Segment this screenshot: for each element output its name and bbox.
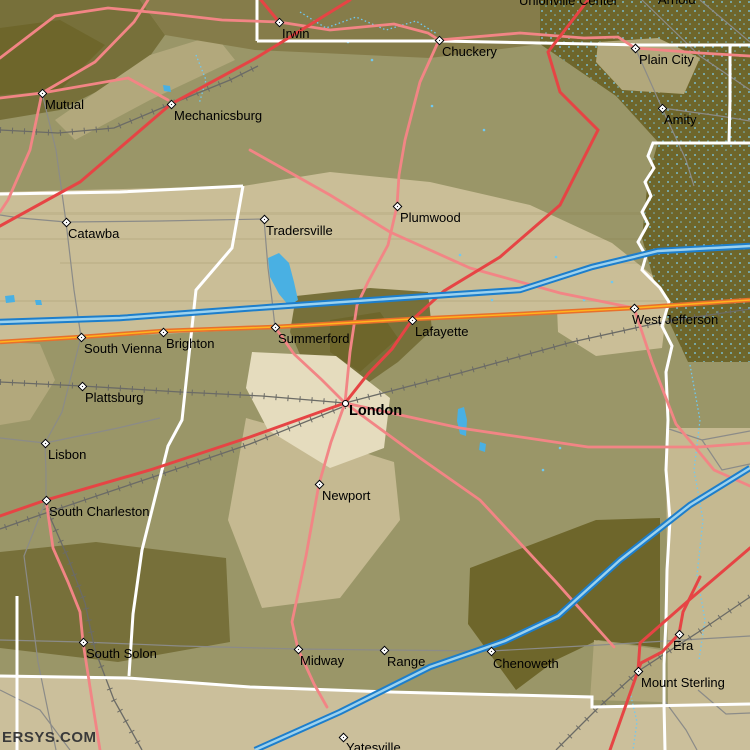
town-dot <box>274 326 276 328</box>
town-label-irwin: Irwin <box>282 27 309 41</box>
town-label-amity: Amity <box>664 113 697 127</box>
town-label-mount-sterling: Mount Sterling <box>641 676 725 690</box>
town-dot <box>45 499 47 501</box>
map-canvas[interactable]: IrwinChuckeryUnionville CenterArnoldPlai… <box>0 0 750 750</box>
town-label-west-jefferson: West Jefferson <box>632 313 718 327</box>
town-dot <box>80 336 82 338</box>
terrain-layer <box>0 0 750 750</box>
town-dot <box>44 442 46 444</box>
town-dot <box>678 633 680 635</box>
town-label-south-vienna: South Vienna <box>84 342 162 356</box>
town-dot <box>41 92 43 94</box>
town-dot <box>162 331 164 333</box>
town-label-catawba: Catawba <box>68 227 119 241</box>
town-label-arnold: Arnold <box>658 0 696 7</box>
town-label-plattsburg: Plattsburg <box>85 391 144 405</box>
town-dot <box>170 103 172 105</box>
town-label-plain-city: Plain City <box>639 53 694 67</box>
town-dot <box>65 221 67 223</box>
town-dot <box>383 649 385 651</box>
town-label-era: Era <box>673 639 693 653</box>
town-label-tradersville: Tradersville <box>266 224 333 238</box>
town-dot <box>633 307 635 309</box>
town-label-south-solon: South Solon <box>86 647 157 661</box>
town-label-mechanicsburg: Mechanicsburg <box>174 109 262 123</box>
town-dot <box>297 648 299 650</box>
town-label-plumwood: Plumwood <box>400 211 461 225</box>
town-dot <box>438 39 440 41</box>
relief-streak <box>60 262 660 264</box>
town-dot <box>637 670 639 672</box>
pond-mechanicsburg <box>163 85 171 92</box>
town-dot <box>342 736 344 738</box>
town-dot <box>396 205 398 207</box>
town-label-south-charleston: South Charleston <box>49 505 149 519</box>
town-label-chenoweth: Chenoweth <box>493 657 559 671</box>
town-label-range: Range <box>387 655 425 669</box>
town-label-lafayette: Lafayette <box>415 325 469 339</box>
boundary-northeast-vertical <box>729 45 730 143</box>
town-label-mutual: Mutual <box>45 98 84 112</box>
town-dot <box>634 47 636 49</box>
watermark: ERSYS.COM <box>2 729 97 746</box>
town-label-midway: Midway <box>300 654 344 668</box>
town-label-london: London <box>349 404 402 418</box>
town-dot <box>263 218 265 220</box>
relief-streak <box>0 212 750 215</box>
town-marker-london <box>342 400 349 407</box>
town-label-brighton: Brighton <box>166 337 214 351</box>
map-image <box>0 0 750 750</box>
town-label-lisbon: Lisbon <box>48 448 86 462</box>
town-label-unionville-center: Unionville Center <box>519 0 618 8</box>
pond-small-3 <box>35 300 42 305</box>
town-label-summerford: Summerford <box>278 332 350 346</box>
pond-small-2 <box>5 295 15 303</box>
town-dot <box>411 319 413 321</box>
town-dot <box>318 483 320 485</box>
terrain-right-tan <box>666 428 750 704</box>
town-dot <box>490 650 492 652</box>
town-label-yatesville: Yatesville <box>346 741 401 750</box>
town-label-chuckery: Chuckery <box>442 45 497 59</box>
town-dot <box>278 21 280 23</box>
terrain-mountsterling-khaki <box>590 640 662 702</box>
town-dot <box>81 385 83 387</box>
town-dot <box>82 641 84 643</box>
town-label-newport: Newport <box>322 489 370 503</box>
terrain-bottomleft-dark <box>0 542 230 662</box>
town-dot <box>661 107 663 109</box>
